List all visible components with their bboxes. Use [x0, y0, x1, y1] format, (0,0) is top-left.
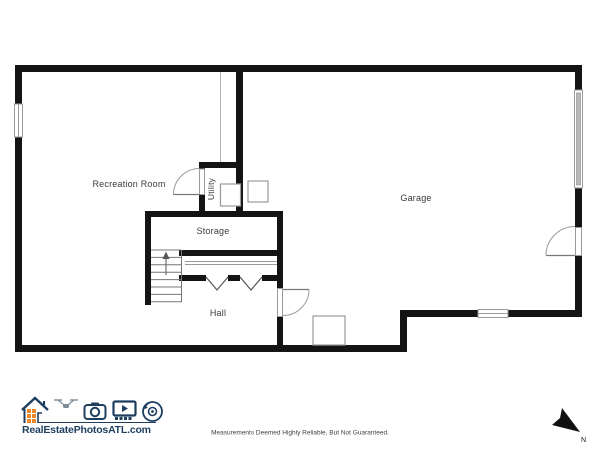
utility-door	[174, 169, 205, 195]
room-label-utility: Utility	[206, 178, 216, 200]
hall-door	[278, 289, 310, 317]
video-tour-icon	[112, 400, 137, 421]
compass-label: N	[581, 437, 586, 444]
disclaimer-text: Measurements Deemed Highly Reliable, But…	[211, 430, 389, 437]
room-label-storage: Storage	[197, 226, 230, 236]
room-label-garage: Garage	[400, 193, 431, 203]
house-icon	[20, 396, 54, 424]
room-label-hall: Hall	[210, 308, 226, 318]
bifold-door-right	[240, 277, 262, 290]
compass: N	[545, 400, 600, 450]
drone-icon	[53, 396, 79, 410]
logo-underline	[38, 422, 156, 423]
garage-door	[575, 90, 583, 188]
plan-details	[0, 0, 600, 450]
room-label-recreation: Recreation Room	[92, 179, 165, 189]
camera-icon	[83, 401, 107, 421]
bifold-door-left	[206, 277, 228, 290]
brand-text: RealEstatePhotosATL.com	[22, 424, 151, 436]
utility-appliance	[221, 184, 241, 206]
north-arrow-icon: N	[545, 400, 600, 450]
stair-direction-arrow-icon	[163, 252, 170, 276]
floor-plan: Recreation Room Utility Storage Hall Gar…	[0, 0, 600, 450]
window-bottom-garage	[478, 310, 508, 318]
camera-360-icon	[141, 400, 164, 423]
water-heater	[313, 316, 345, 345]
logo: RealEstatePhotosATL.com	[20, 394, 180, 444]
garage-appliance	[248, 181, 268, 202]
garage-entry-door	[546, 227, 582, 256]
window-left	[15, 104, 23, 137]
